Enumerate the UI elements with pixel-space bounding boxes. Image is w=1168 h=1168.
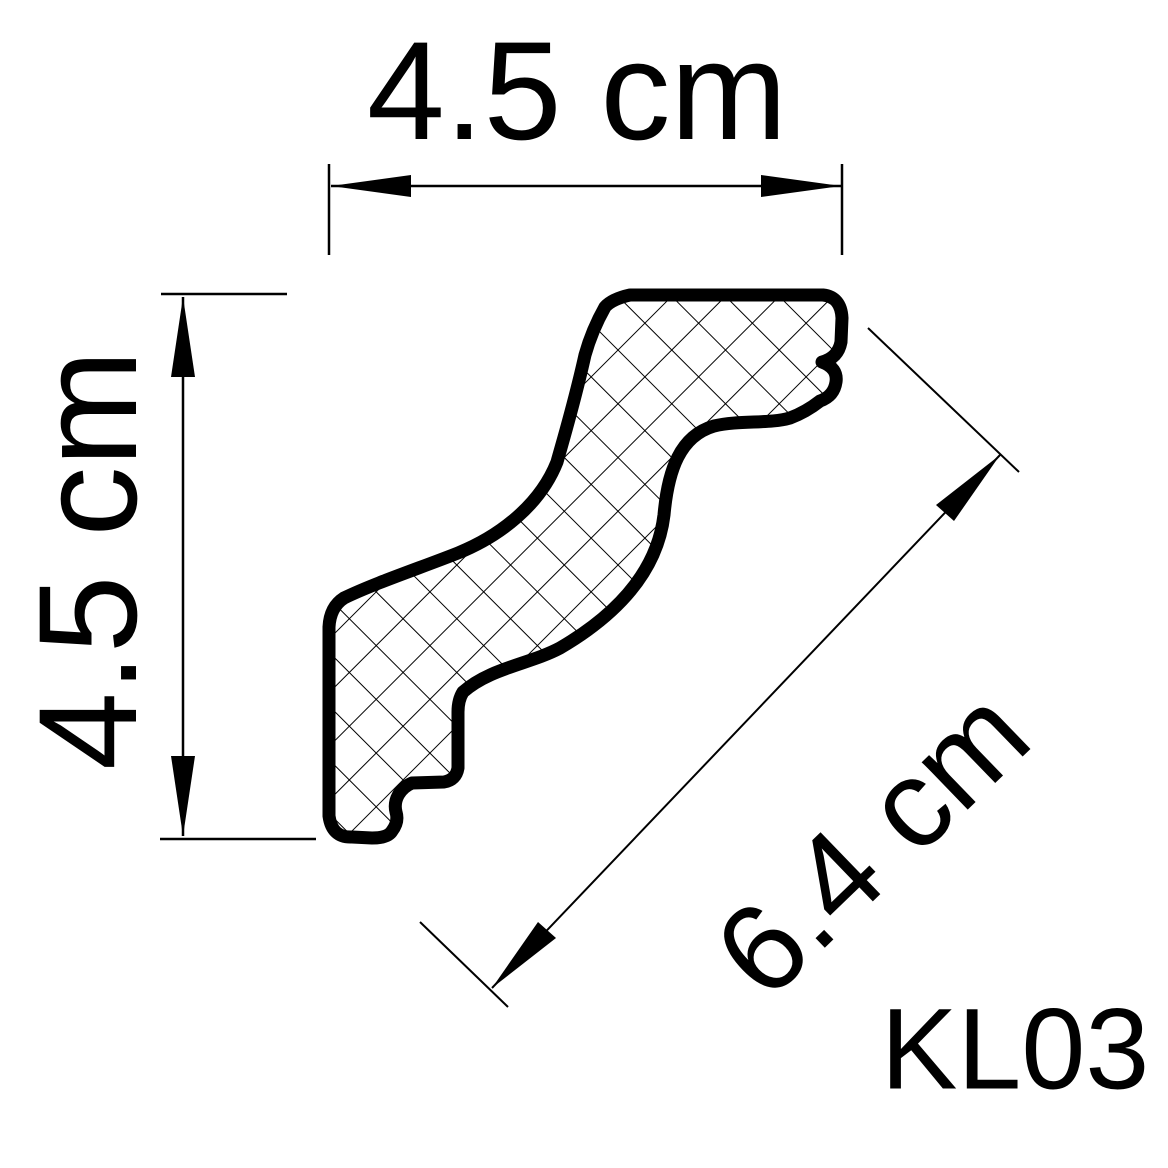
molding-profile-outline <box>329 295 842 838</box>
technical-drawing: 4.5 cm 4.5 cm 6.4 cm KL03 <box>0 0 1168 1168</box>
product-code-label: KL03 <box>881 993 1150 1108</box>
arrowhead-icon <box>171 756 195 836</box>
width-dimension-label: 4.5 cm <box>367 21 787 161</box>
arrowhead-icon <box>761 175 841 197</box>
width-dimension <box>329 164 842 255</box>
arrowhead-icon <box>936 455 1000 521</box>
molding-profile <box>329 295 842 838</box>
diagonal-extension-line-bottom <box>420 922 508 1007</box>
arrowhead-icon <box>171 297 195 377</box>
arrowhead-icon <box>331 175 411 197</box>
diagonal-extension-line-top <box>868 328 1019 472</box>
height-dimension <box>160 294 316 839</box>
height-dimension-label: 4.5 cm <box>18 350 158 770</box>
arrowhead-icon <box>492 922 556 988</box>
